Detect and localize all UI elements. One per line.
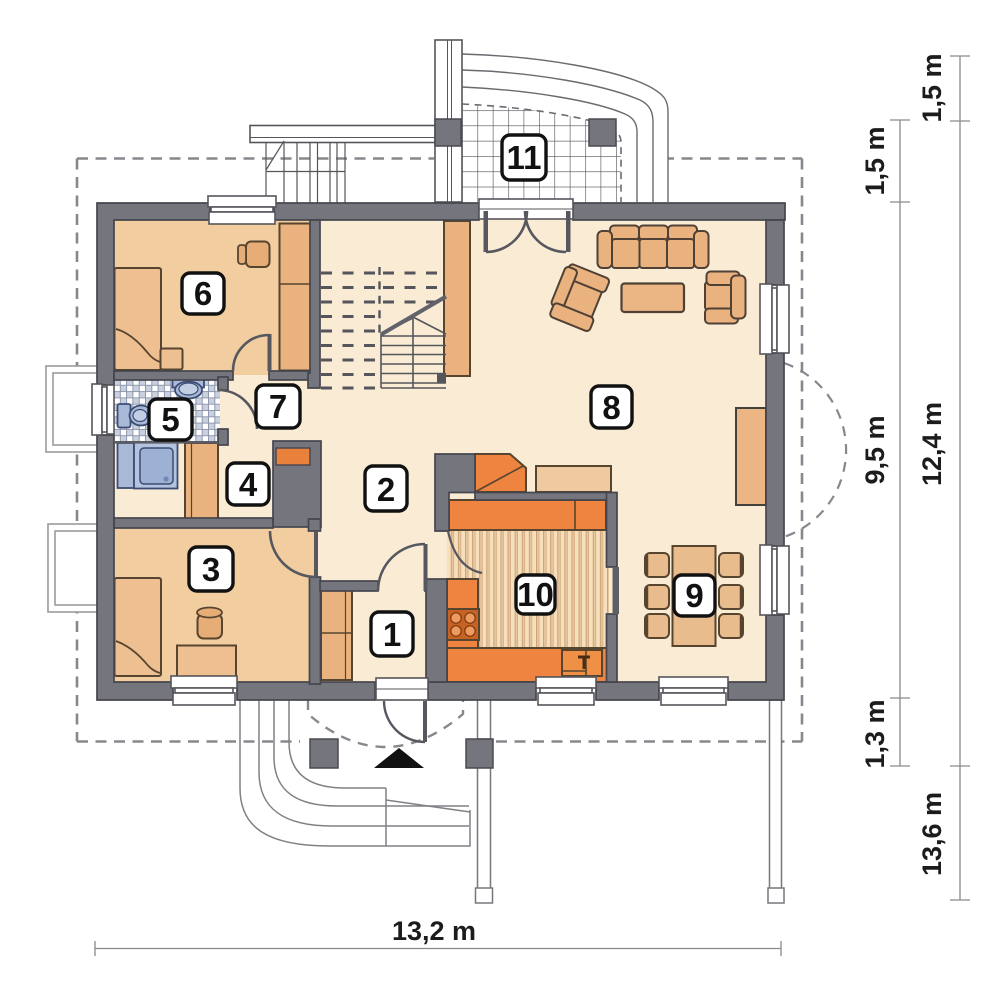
svg-text:7: 7 (269, 388, 287, 425)
svg-text:3: 3 (202, 551, 220, 588)
svg-text:13,2 m: 13,2 m (392, 916, 476, 946)
svg-text:4: 4 (239, 466, 258, 503)
svg-text:12,4 m: 12,4 m (917, 402, 947, 486)
svg-text:11: 11 (507, 139, 542, 176)
svg-text:13,6 m: 13,6 m (917, 792, 947, 876)
svg-text:1,5 m: 1,5 m (860, 126, 890, 195)
svg-text:6: 6 (194, 275, 212, 312)
svg-text:5: 5 (161, 401, 179, 438)
svg-text:9: 9 (685, 577, 703, 614)
svg-text:1,3 m: 1,3 m (860, 699, 890, 768)
svg-text:1,5 m: 1,5 m (917, 53, 947, 122)
svg-text:2: 2 (377, 471, 395, 508)
svg-text:1: 1 (383, 616, 401, 653)
svg-text:8: 8 (602, 389, 620, 426)
svg-text:9,5 m: 9,5 m (860, 415, 890, 484)
svg-text:10: 10 (517, 576, 554, 613)
